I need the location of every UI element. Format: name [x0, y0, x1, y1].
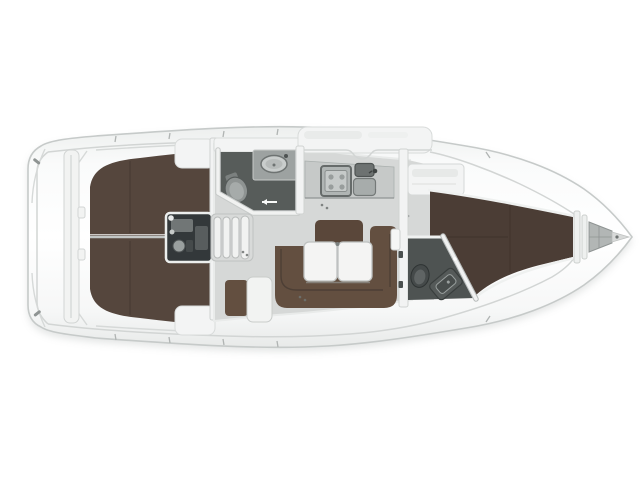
transom-tab-upper — [78, 207, 85, 218]
engine-pulley — [173, 240, 185, 252]
aft-berth-pillow-starboard — [175, 306, 215, 335]
galley-head-partition — [296, 146, 304, 214]
floor-fitting-dot — [242, 251, 245, 254]
aft-head-sink-drain — [273, 164, 276, 167]
engine-part-manifold — [195, 226, 208, 250]
floor-fitting-dot — [326, 207, 329, 210]
forestay-fitting — [615, 235, 618, 238]
forward-head-door-knob — [453, 257, 457, 261]
forward-cabinet-shelf — [412, 169, 458, 177]
bow-bulkhead-strip-2 — [582, 215, 587, 259]
stove-burner-2 — [339, 174, 344, 179]
galley-faucet — [373, 169, 378, 174]
galley-sink-small — [355, 164, 374, 177]
stove-burner-3 — [328, 184, 333, 189]
boat-floor-plan — [0, 0, 640, 480]
stove-burner-1 — [328, 174, 333, 179]
companionway-step-2 — [223, 217, 230, 258]
hatch-garage — [298, 127, 432, 153]
floor-fitting-dot — [246, 254, 249, 257]
aft-head-faucet — [284, 154, 288, 158]
engine-part-block — [171, 219, 193, 232]
engine-cap — [170, 230, 175, 235]
door-hinge-upper — [399, 251, 404, 258]
engine-filler — [168, 215, 174, 221]
salon-table-left-leaf — [304, 242, 337, 281]
hatch-panel-right — [368, 132, 408, 138]
stove-burner-4 — [339, 184, 344, 189]
floor-fitting-dot — [321, 204, 324, 207]
floor-fitting-dot — [299, 296, 302, 299]
galley-sink-large — [354, 179, 376, 196]
companionway-step-1 — [214, 217, 221, 258]
door-hinge-lower — [399, 281, 404, 288]
salon-step-locker — [247, 277, 272, 322]
companionway-step-3 — [232, 217, 239, 258]
bow-bulkhead-strip-1 — [574, 211, 580, 263]
companionway — [166, 213, 253, 262]
floor-fitting-dot — [304, 299, 307, 302]
yacht-floor-plan-image — [0, 0, 640, 480]
table-hinge-clasp — [336, 242, 340, 246]
aft-berth-pillow-port — [175, 139, 215, 168]
salon-table-right-leaf — [338, 242, 372, 281]
transom-tab-lower — [78, 249, 85, 260]
salon-side-bench — [225, 280, 248, 316]
hatch-panel-left — [304, 131, 362, 139]
forward-door-frame — [391, 229, 400, 250]
engine-part-small — [186, 240, 193, 252]
